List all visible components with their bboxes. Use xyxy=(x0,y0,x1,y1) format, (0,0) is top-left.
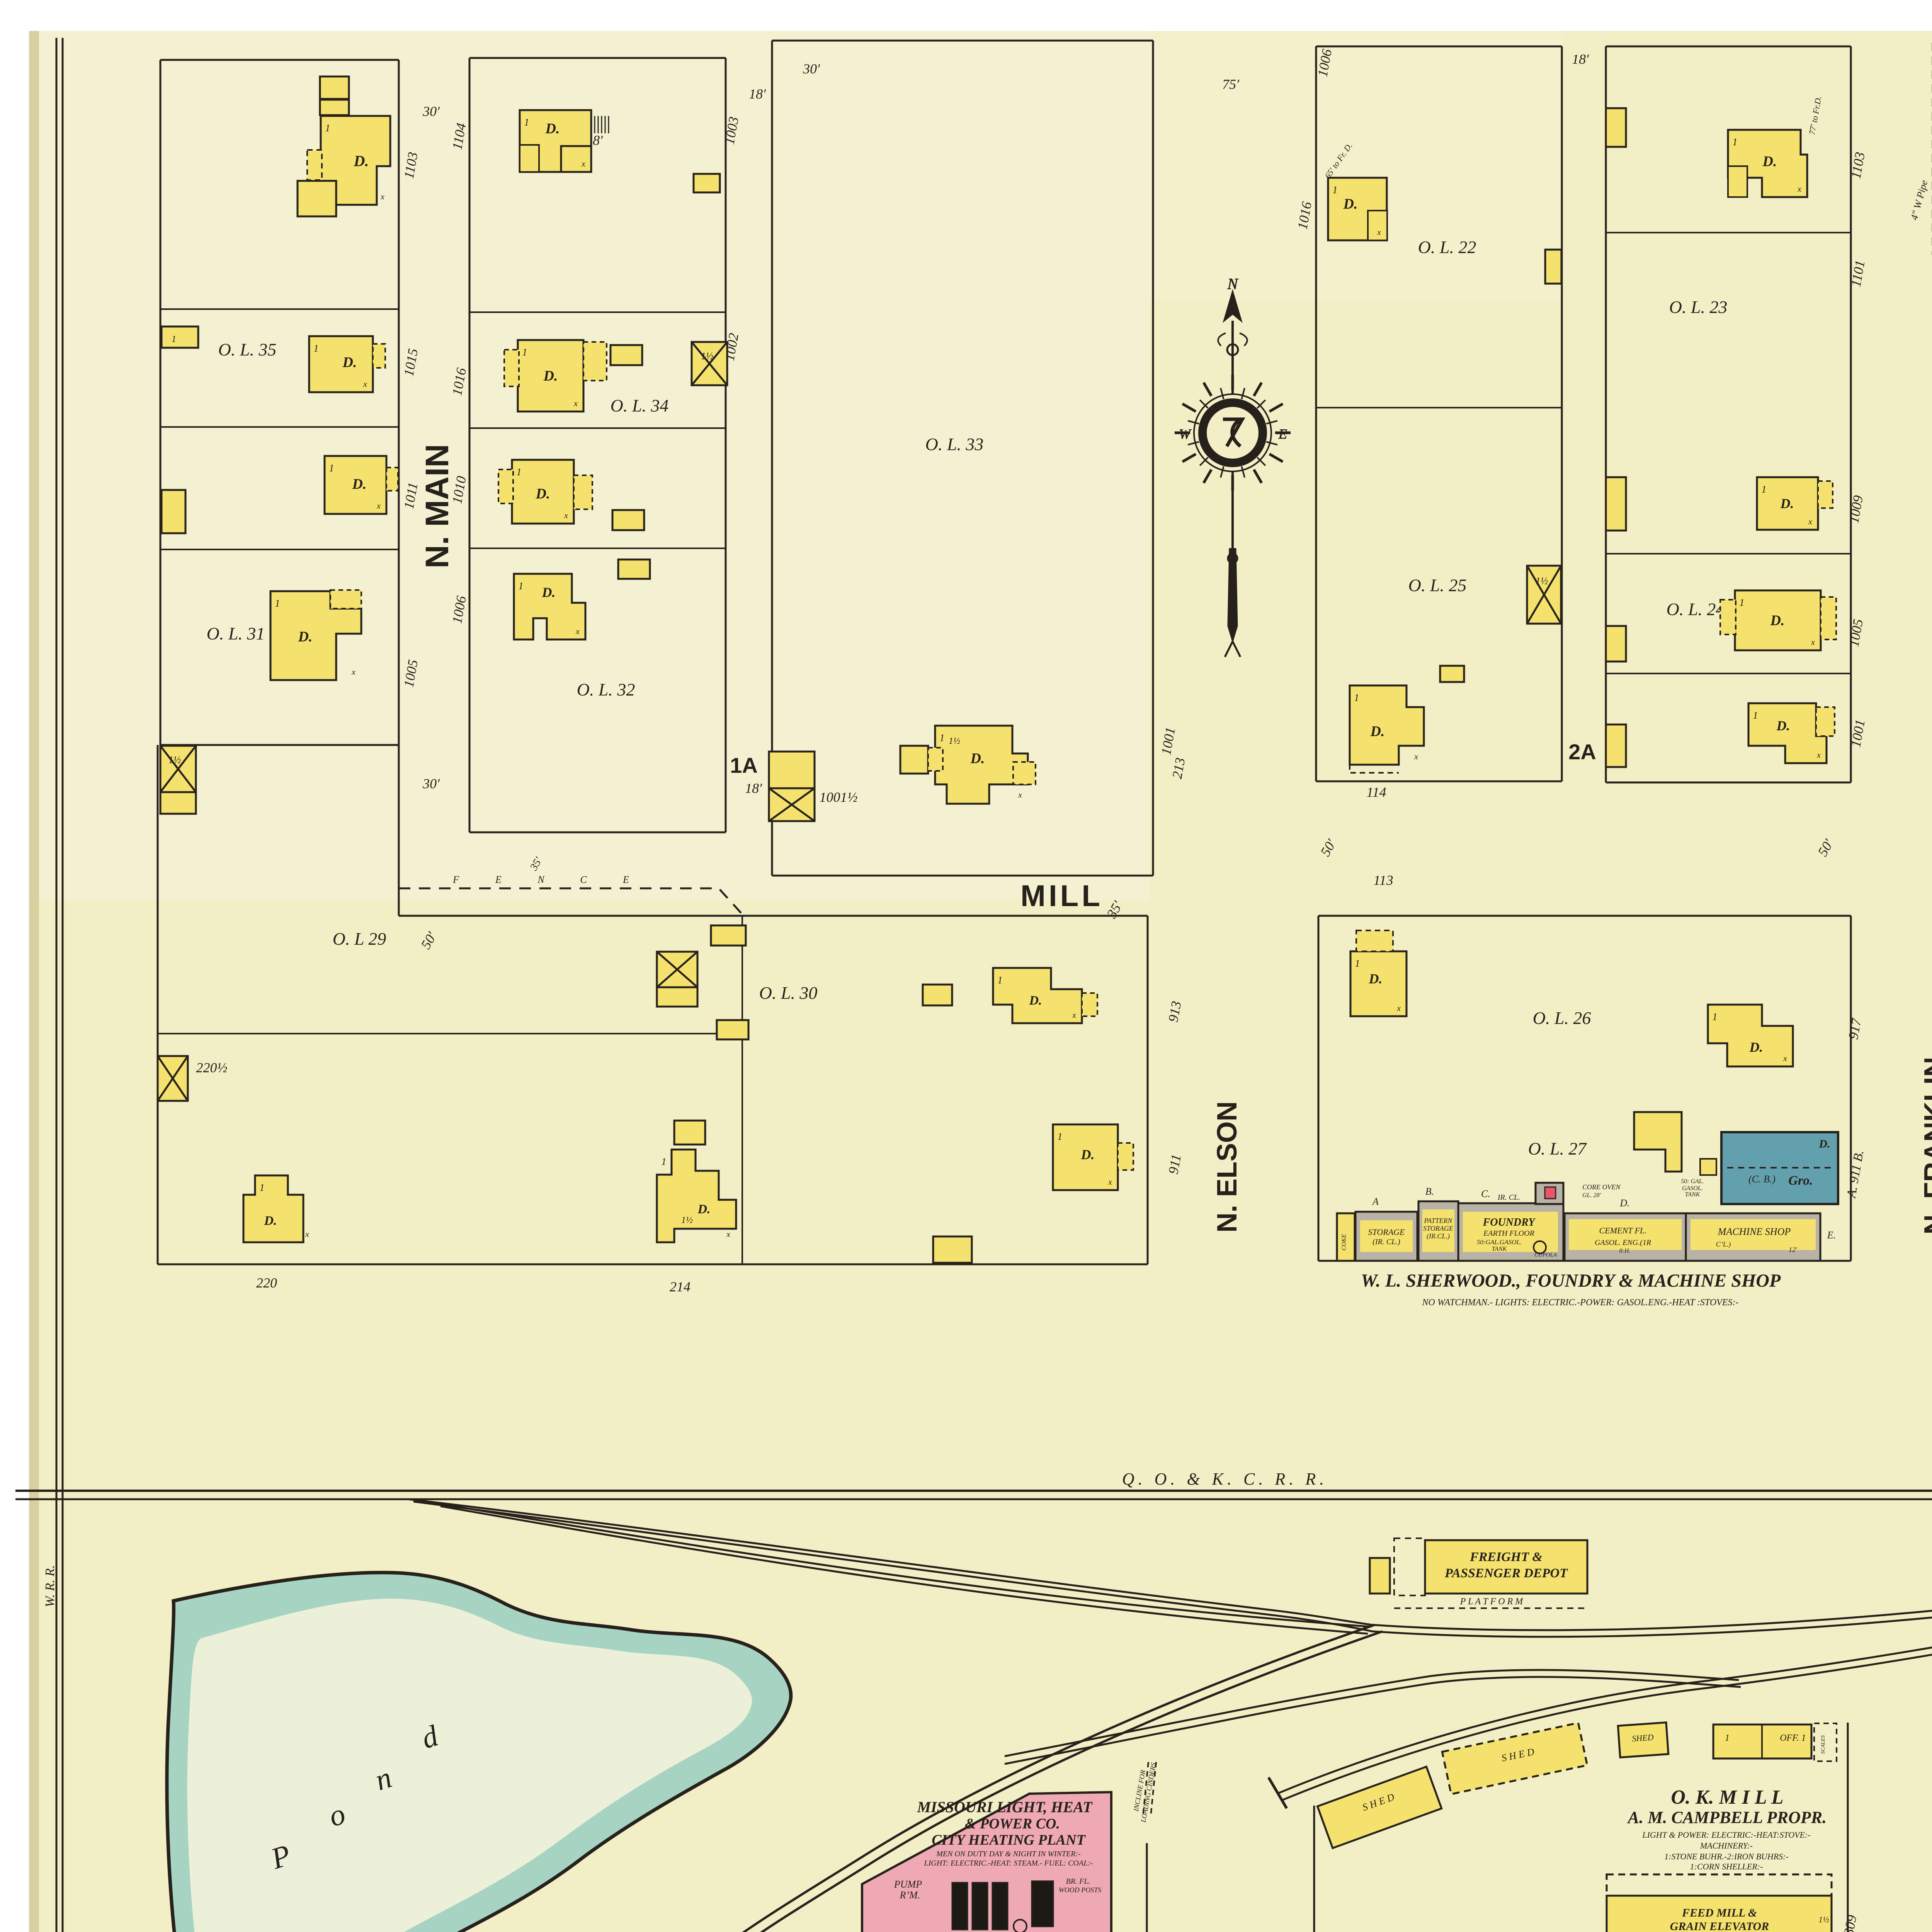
svg-text:1: 1 xyxy=(260,1182,265,1193)
svg-text:TANK: TANK xyxy=(1685,1191,1701,1198)
svg-text:F: F xyxy=(452,874,459,885)
svg-text:1½: 1½ xyxy=(949,736,960,746)
svg-text:CORE OVEN: CORE OVEN xyxy=(1582,1183,1621,1191)
svg-text:D.: D. xyxy=(545,121,560,137)
svg-text:1001½: 1001½ xyxy=(820,789,858,805)
svg-text:D.: D. xyxy=(542,585,556,600)
svg-text:O. L. 24: O. L. 24 xyxy=(1667,599,1725,619)
svg-text:18′: 18′ xyxy=(1572,51,1589,67)
svg-text:WOOD POSTS: WOOD POSTS xyxy=(1059,1886,1102,1894)
svg-text:D.: D. xyxy=(1818,1138,1830,1150)
svg-text:1½: 1½ xyxy=(1536,575,1548,587)
svg-text:x: x xyxy=(380,192,384,201)
svg-text:114: 114 xyxy=(1366,784,1386,800)
svg-text:D.: D. xyxy=(264,1214,277,1228)
svg-text:1: 1 xyxy=(940,732,945,743)
svg-text:1½: 1½ xyxy=(1818,1915,1829,1924)
svg-text:CEMENT FL.: CEMENT FL. xyxy=(1599,1226,1646,1235)
svg-text:D.: D. xyxy=(342,354,357,371)
svg-text:x: x xyxy=(1396,1003,1401,1013)
svg-text:STORAGE: STORAGE xyxy=(1368,1227,1405,1237)
svg-text:MILL: MILL xyxy=(1020,879,1103,913)
svg-text:D.: D. xyxy=(1762,153,1777,170)
svg-text:O. L. 32: O. L. 32 xyxy=(577,680,635,699)
svg-text:50: GAL.: 50: GAL. xyxy=(1681,1178,1704,1185)
svg-text:1: 1 xyxy=(1762,484,1767,495)
svg-text:30′: 30′ xyxy=(803,61,820,77)
svg-text:1: 1 xyxy=(1333,184,1338,196)
svg-text:x: x xyxy=(363,379,367,389)
svg-text:D.: D. xyxy=(543,368,558,384)
svg-text:x: x xyxy=(1072,1010,1076,1020)
svg-text:1: 1 xyxy=(524,117,529,128)
svg-text:1½: 1½ xyxy=(701,350,714,362)
svg-text:D.: D. xyxy=(1749,1039,1763,1055)
svg-text:D.: D. xyxy=(1370,723,1385,740)
svg-text:D.: D. xyxy=(1369,971,1383,986)
svg-text:1: 1 xyxy=(1713,1011,1718,1022)
svg-text:1: 1 xyxy=(998,975,1003,986)
svg-text:D.: D. xyxy=(1770,612,1785,629)
svg-text:x: x xyxy=(1018,790,1022,799)
svg-text:x: x xyxy=(1108,1177,1112,1187)
svg-text:x: x xyxy=(351,667,355,677)
svg-text:W: W xyxy=(1179,426,1192,442)
svg-text:C.: C. xyxy=(1481,1188,1490,1199)
svg-text:x: x xyxy=(376,501,381,510)
svg-text:18′: 18′ xyxy=(749,86,766,102)
svg-text:& POWER CO.: & POWER CO. xyxy=(965,1816,1060,1832)
svg-text:1: 1 xyxy=(1058,1131,1063,1142)
svg-text:LIGHT: ELECTRIC.-HEAT: STEAM.-: LIGHT: ELECTRIC.-HEAT: STEAM.- FUEL: COA… xyxy=(923,1859,1093,1867)
svg-text:D.: D. xyxy=(354,152,369,170)
svg-text:(IR. CL.): (IR. CL.) xyxy=(1372,1238,1400,1246)
svg-text:E: E xyxy=(495,874,502,885)
svg-text:D.: D. xyxy=(1343,196,1358,212)
svg-text:SCALES: SCALES xyxy=(1820,1735,1826,1754)
svg-text:1: 1 xyxy=(172,334,176,344)
svg-text:x: x xyxy=(1414,752,1418,761)
svg-text:R’M.: R’M. xyxy=(900,1889,920,1901)
svg-text:SHED: SHED xyxy=(1632,1732,1654,1743)
svg-text:GL. 28′: GL. 28′ xyxy=(1582,1192,1601,1199)
svg-text:113: 113 xyxy=(1373,872,1393,888)
svg-text:1: 1 xyxy=(1354,692,1359,703)
svg-text:E.: E. xyxy=(1827,1230,1836,1241)
svg-text:D.: D. xyxy=(298,629,313,645)
svg-text:30′: 30′ xyxy=(422,776,440,791)
svg-text:x: x xyxy=(1797,184,1801,194)
svg-text:O. L. 33: O. L. 33 xyxy=(925,434,984,454)
svg-text:1: 1 xyxy=(517,466,522,478)
svg-text:8:H.: 8:H. xyxy=(1619,1248,1631,1254)
svg-text:220½: 220½ xyxy=(196,1060,228,1075)
svg-text:x: x xyxy=(1377,227,1381,237)
svg-text:P L A T F O R M: P L A T F O R M xyxy=(1460,1597,1524,1607)
svg-text:PATTERN: PATTERN xyxy=(1423,1217,1452,1225)
svg-text:IR. CL.: IR. CL. xyxy=(1497,1193,1520,1202)
svg-text:N. MAIN: N. MAIN xyxy=(419,444,455,568)
svg-text:1½: 1½ xyxy=(681,1215,693,1225)
svg-text:PUMP: PUMP xyxy=(894,1879,922,1890)
svg-text:1: 1 xyxy=(314,343,319,354)
svg-text:18′: 18′ xyxy=(745,781,762,796)
svg-text:(IR.CL.): (IR.CL.) xyxy=(1427,1232,1450,1240)
svg-text:TANK: TANK xyxy=(1492,1246,1507,1252)
svg-text:x: x xyxy=(1811,637,1815,647)
svg-text:D.: D. xyxy=(697,1202,710,1216)
svg-text:MACHINERY:-: MACHINERY:- xyxy=(1700,1841,1753,1850)
svg-text:x: x xyxy=(573,398,578,408)
svg-text:2A: 2A xyxy=(1568,740,1596,764)
svg-text:NO WATCHMAN.- LIGHTS: ELECTRIC: NO WATCHMAN.- LIGHTS: ELECTRIC.-POWER: G… xyxy=(1422,1298,1739,1308)
svg-text:x: x xyxy=(1808,517,1812,526)
svg-text:D.: D. xyxy=(1619,1197,1629,1209)
svg-text:GRAIN ELEVATOR: GRAIN ELEVATOR xyxy=(1670,1920,1769,1932)
svg-text:D.: D. xyxy=(352,476,367,492)
svg-text:N: N xyxy=(537,874,545,885)
svg-text:x: x xyxy=(726,1229,730,1239)
svg-text:CUPOLA: CUPOLA xyxy=(1534,1252,1557,1258)
svg-text:FOUNDRY: FOUNDRY xyxy=(1483,1216,1536,1228)
svg-text:1: 1 xyxy=(519,580,524,592)
svg-text:OFF. 1: OFF. 1 xyxy=(1780,1733,1806,1743)
svg-text:30′: 30′ xyxy=(422,104,440,119)
svg-text:1A: 1A xyxy=(730,753,758,777)
svg-text:D.: D. xyxy=(1776,718,1790,733)
svg-text:FREIGHT &: FREIGHT & xyxy=(1469,1550,1543,1564)
svg-text:N: N xyxy=(1227,275,1239,293)
svg-text:1: 1 xyxy=(1725,1733,1730,1743)
svg-text:O. L. 25: O. L. 25 xyxy=(1408,575,1467,595)
svg-text:1: 1 xyxy=(1733,136,1738,148)
svg-text:PASSENGER DEPOT: PASSENGER DEPOT xyxy=(1444,1566,1568,1580)
svg-text:75′: 75′ xyxy=(1222,77,1240,92)
svg-text:O. L 29: O. L 29 xyxy=(333,929,386,949)
svg-text:Q. O. & K. C. R. R.: Q. O. & K. C. R. R. xyxy=(1122,1469,1328,1488)
svg-text:FEED MILL &: FEED MILL & xyxy=(1682,1906,1757,1919)
svg-text:D.: D. xyxy=(970,750,985,767)
svg-text:N. FRANKLIN: N. FRANKLIN xyxy=(1919,1057,1932,1235)
svg-text:A. M. CAMPBELL PROPR.: A. M. CAMPBELL PROPR. xyxy=(1627,1808,1827,1827)
svg-text:1½: 1½ xyxy=(168,754,181,765)
svg-text:1: 1 xyxy=(329,463,334,474)
svg-text:O. K. M I L L: O. K. M I L L xyxy=(1671,1786,1783,1808)
svg-text:1: 1 xyxy=(1355,958,1360,969)
svg-text:1: 1 xyxy=(325,122,330,134)
svg-text:1: 1 xyxy=(275,598,280,609)
svg-text:Gro.: Gro. xyxy=(1788,1173,1813,1188)
svg-text:STORAGE: STORAGE xyxy=(1423,1225,1453,1232)
svg-text:B.: B. xyxy=(1425,1186,1434,1197)
svg-text:1: 1 xyxy=(662,1156,667,1167)
svg-text:W. L. SHERWOOD., FOUNDRY & MAC: W. L. SHERWOOD., FOUNDRY & MACHINE SHOP xyxy=(1361,1270,1781,1291)
svg-text:D.: D. xyxy=(1081,1147,1095,1162)
svg-text:GASOL. ENG.(1R: GASOL. ENG.(1R xyxy=(1595,1238,1651,1247)
svg-text:D.: D. xyxy=(1029,993,1042,1008)
svg-text:x: x xyxy=(581,159,585,168)
svg-text:50:GAL.GASOL.: 50:GAL.GASOL. xyxy=(1477,1238,1522,1246)
svg-text:809: 809 xyxy=(1841,1914,1860,1932)
svg-text:x: x xyxy=(1783,1053,1787,1063)
svg-text:C’L.): C’L.) xyxy=(1716,1240,1731,1248)
svg-text:E: E xyxy=(622,874,629,885)
svg-text:O. L. 34: O. L. 34 xyxy=(611,396,669,415)
svg-text:1: 1 xyxy=(1740,597,1745,608)
svg-text:N. ELSON: N. ELSON xyxy=(1212,1101,1243,1233)
svg-text:12′: 12′ xyxy=(1789,1246,1798,1253)
svg-text:O. L. 27: O. L. 27 xyxy=(1528,1139,1587,1158)
svg-text:E: E xyxy=(1278,426,1287,442)
svg-text:D.: D. xyxy=(536,486,550,502)
svg-text:GASOL.: GASOL. xyxy=(1682,1185,1703,1192)
svg-text:D.: D. xyxy=(1780,496,1794,511)
svg-text:O. L. 30: O. L. 30 xyxy=(759,983,818,1003)
svg-text:O. L. 23: O. L. 23 xyxy=(1669,297,1728,317)
svg-text:MISSOURI LIGHT, HEAT: MISSOURI LIGHT, HEAT xyxy=(917,1798,1093,1816)
svg-text:1:CORN SHELLER:-: 1:CORN SHELLER:- xyxy=(1690,1862,1763,1871)
svg-text:BR. FL.: BR. FL. xyxy=(1066,1877,1090,1886)
svg-text:x: x xyxy=(1816,750,1821,760)
svg-text:220: 220 xyxy=(256,1275,277,1291)
svg-text:O. L. 35: O. L. 35 xyxy=(218,340,277,359)
svg-text:EARTH FLOOR: EARTH FLOOR xyxy=(1483,1229,1534,1238)
svg-text:LIGHT & POWER: ELECTRIC:-HEAT:: LIGHT & POWER: ELECTRIC:-HEAT:STOVE:- xyxy=(1642,1830,1810,1840)
svg-text:x: x xyxy=(564,510,568,520)
svg-text:1:STONE BUHR.-2:IRON BUHRS:-: 1:STONE BUHR.-2:IRON BUHRS:- xyxy=(1664,1852,1789,1861)
svg-text:1: 1 xyxy=(1753,710,1758,721)
svg-text:A: A xyxy=(1372,1196,1379,1207)
svg-text:1: 1 xyxy=(522,347,527,358)
svg-text:O. L. 31: O. L. 31 xyxy=(207,624,265,643)
svg-text:(C. B.): (C. B.) xyxy=(1748,1173,1776,1185)
svg-text:214: 214 xyxy=(670,1279,690,1294)
svg-text:W. R. R.: W. R. R. xyxy=(43,1565,57,1607)
svg-text:MEN ON DUTY DAY & NIGHT IN WIN: MEN ON DUTY DAY & NIGHT IN WINTER:- xyxy=(936,1850,1081,1858)
svg-text:C: C xyxy=(580,874,587,885)
svg-text:COKE: COKE xyxy=(1341,1234,1347,1250)
svg-text:O. L. 26: O. L. 26 xyxy=(1533,1008,1591,1028)
svg-text:x: x xyxy=(305,1229,309,1239)
svg-text:CITY HEATING PLANT: CITY HEATING PLANT xyxy=(932,1832,1086,1848)
svg-text:O. L. 22: O. L. 22 xyxy=(1418,237,1476,257)
svg-text:MACHINE SHOP: MACHINE SHOP xyxy=(1718,1226,1791,1237)
svg-text:x: x xyxy=(575,626,580,636)
